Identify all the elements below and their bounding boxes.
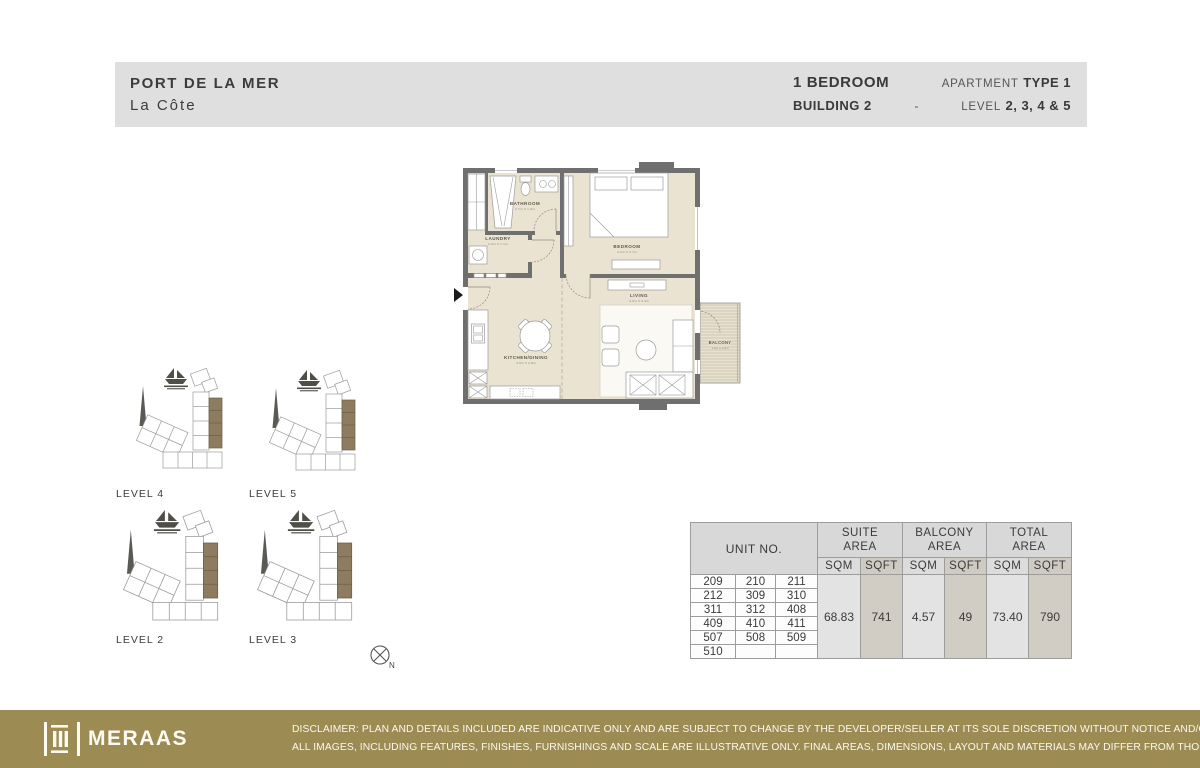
balcony-area-header: BALCONY AREA xyxy=(903,523,987,558)
room-dims-balcony: 1.6m X 2.9m xyxy=(711,346,729,350)
balcony-label: BALCONY xyxy=(903,526,986,540)
apartment-type: TYPE 1 xyxy=(1023,75,1071,90)
meraas-logo-icon xyxy=(44,721,80,757)
sqm-header: SQM xyxy=(818,557,861,574)
unit-number xyxy=(776,645,818,659)
floor-plan: BATHROOM 2.7m X 1.9m LAUNDRY 2.0m X 1.1m… xyxy=(440,160,770,412)
disclaimer: DISCLAIMER: PLAN AND DETAILS INCLUDED AR… xyxy=(292,721,1158,757)
total-label: TOTAL xyxy=(987,526,1071,540)
level-numbers: 2, 3, 4 & 5 xyxy=(1006,98,1071,113)
subproject-title: La Côte xyxy=(130,95,280,117)
table-row: 209 210 211 68.83 741 4.57 49 73.40 790 xyxy=(691,575,1072,589)
header-right: 1 BEDROOM APARTMENT TYPE 1 BUILDING 2 - … xyxy=(793,72,1071,118)
balcony-area-label: AREA xyxy=(903,540,986,554)
room-label-laundry: LAUNDRY xyxy=(485,236,510,241)
sqft-header: SQFT xyxy=(945,557,987,574)
unit-number: 408 xyxy=(776,603,818,617)
room-label-bedroom: BEDROOM xyxy=(613,244,640,249)
total-area-header: TOTAL AREA xyxy=(987,523,1072,558)
entry-arrow-icon xyxy=(454,288,463,302)
room-dims-bedroom: 4.2m X 3.7m xyxy=(617,250,637,254)
unit-number: 508 xyxy=(736,631,776,645)
balcony-sqm-value: 4.57 xyxy=(903,575,945,659)
building-label: BUILDING 2 xyxy=(793,95,872,117)
sqm-header: SQM xyxy=(903,557,945,574)
balcony-sqft-value: 49 xyxy=(945,575,987,659)
meraas-logo: MERAAS xyxy=(44,721,188,757)
room-label-living: LIVING xyxy=(630,293,648,298)
total-area-label: AREA xyxy=(987,540,1071,554)
unit-number: 409 xyxy=(691,617,736,631)
header-left: PORT DE LA MER La Côte xyxy=(130,73,280,117)
header-bar: PORT DE LA MER La Côte 1 BEDROOM APARTME… xyxy=(115,62,1087,127)
total-sqft-value: 790 xyxy=(1029,575,1072,659)
unit-number xyxy=(736,645,776,659)
room-label-balcony: BALCONY xyxy=(709,340,732,345)
sqft-header: SQFT xyxy=(861,557,903,574)
brand-name: MERAAS xyxy=(88,727,188,751)
unit-number: 309 xyxy=(736,589,776,603)
unit-no-header: UNIT NO. xyxy=(691,523,818,575)
suite-label: SUITE xyxy=(818,526,902,540)
brochure-page: PORT DE LA MER La Côte 1 BEDROOM APARTME… xyxy=(0,0,1200,768)
room-label-kitchen: KITCHEN/DINING xyxy=(504,355,548,360)
suite-sqft-value: 741 xyxy=(861,575,903,659)
keyplan-label-level2: LEVEL 2 xyxy=(116,634,164,646)
unit-number: 411 xyxy=(776,617,818,631)
suite-area-label: AREA xyxy=(818,540,902,554)
unit-number: 311 xyxy=(691,603,736,617)
room-dims-laundry: 2.0m X 1.1m xyxy=(488,242,508,246)
compass-north-label: N xyxy=(389,661,395,670)
unit-number: 510 xyxy=(691,645,736,659)
unit-number: 209 xyxy=(691,575,736,589)
sqft-header: SQFT xyxy=(1029,557,1072,574)
room-dims-bathroom: 2.7m X 1.9m xyxy=(515,207,535,211)
unit-number: 212 xyxy=(691,589,736,603)
project-title: PORT DE LA MER xyxy=(130,73,280,95)
room-dims-kitchen: 3.5m X 2.8m xyxy=(516,361,536,365)
apartment-label: APARTMENT xyxy=(942,78,1019,90)
sqm-header: SQM xyxy=(987,557,1029,574)
unit-number: 507 xyxy=(691,631,736,645)
keyplan-label-level3: LEVEL 3 xyxy=(249,634,297,646)
header-dash: - xyxy=(914,95,918,117)
ac-ledge-top xyxy=(639,162,674,171)
room-label-bathroom: BATHROOM xyxy=(510,201,540,206)
level-keyplans: N xyxy=(100,360,410,675)
keyplan-label-level5: LEVEL 5 xyxy=(249,488,297,500)
unit-number: 509 xyxy=(776,631,818,645)
unit-number: 211 xyxy=(776,575,818,589)
room-dims-living: 4.9m X 4.4m xyxy=(629,299,649,303)
ac-ledge-bottom xyxy=(639,401,667,410)
disclaimer-line-2: ALL IMAGES, INCLUDING FEATURES, FINISHES… xyxy=(292,739,1158,757)
compass-icon: N xyxy=(371,646,395,670)
unit-number: 312 xyxy=(736,603,776,617)
bedroom-count: 1 BEDROOM xyxy=(793,72,889,94)
level-label: LEVEL xyxy=(961,101,1001,113)
total-sqm-value: 73.40 xyxy=(987,575,1029,659)
footer-bar: MERAAS DISCLAIMER: PLAN AND DETAILS INCL… xyxy=(0,710,1200,768)
suite-area-header: SUITE AREA xyxy=(818,523,903,558)
suite-sqm-value: 68.83 xyxy=(818,575,861,659)
disclaimer-line-1: DISCLAIMER: PLAN AND DETAILS INCLUDED AR… xyxy=(292,721,1158,739)
keyplan-label-level4: LEVEL 4 xyxy=(116,488,164,500)
unit-area-table: UNIT NO. SUITE AREA BALCONY AREA TOTAL A… xyxy=(690,522,1072,659)
unit-number: 210 xyxy=(736,575,776,589)
unit-number: 410 xyxy=(736,617,776,631)
unit-number: 310 xyxy=(776,589,818,603)
